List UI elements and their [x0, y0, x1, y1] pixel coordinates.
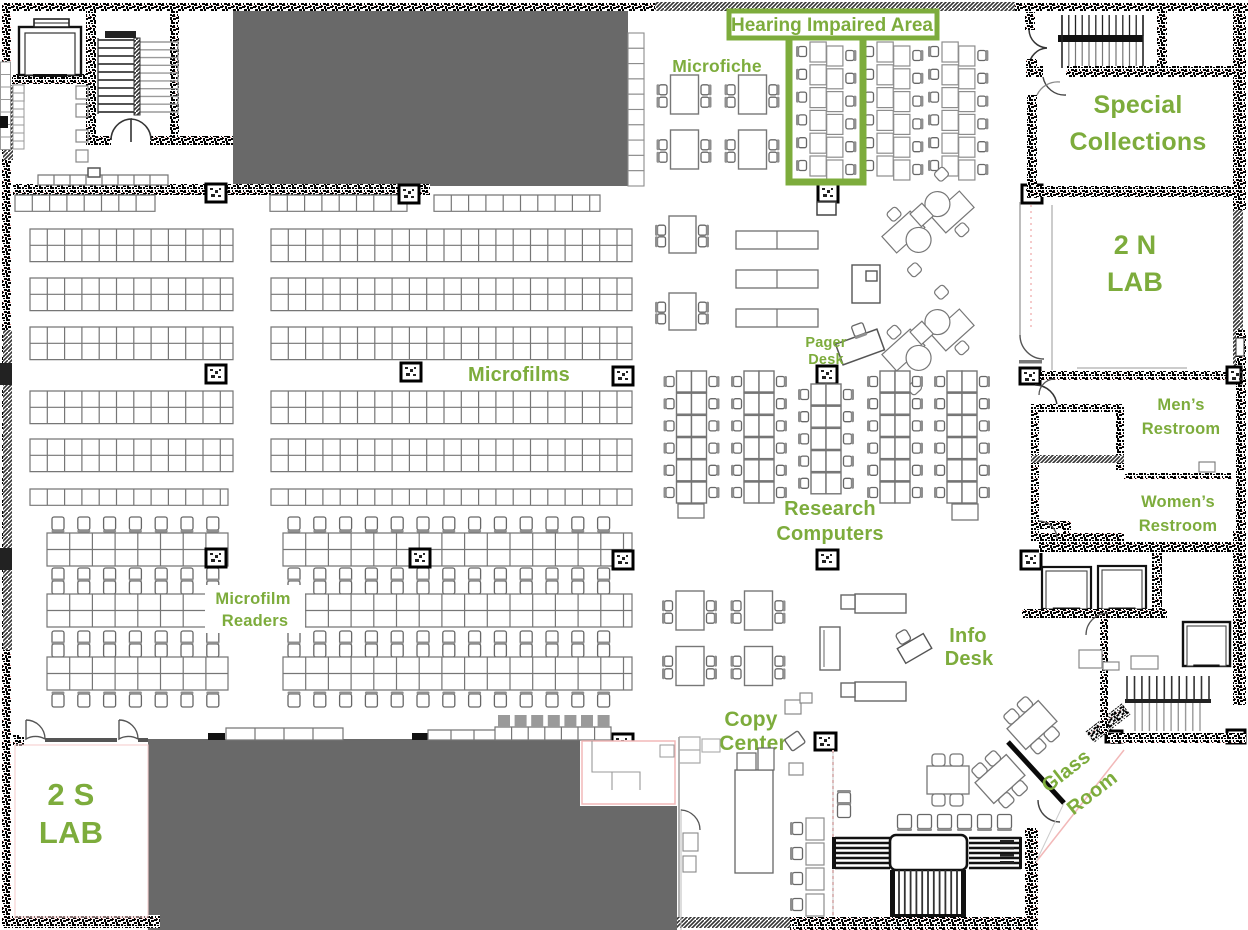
svg-text:Microfilms: Microfilms: [468, 364, 570, 386]
svg-text:LAB: LAB: [1107, 267, 1163, 297]
svg-text:Collections: Collections: [1070, 128, 1207, 156]
svg-text:Restroom: Restroom: [1139, 517, 1218, 535]
svg-text:Readers: Readers: [222, 612, 289, 630]
svg-text:Center: Center: [719, 732, 787, 755]
svg-text:Special: Special: [1094, 91, 1183, 119]
svg-text:Women’s: Women’s: [1141, 493, 1215, 511]
svg-text:Microfiche: Microfiche: [672, 56, 762, 76]
svg-text:Copy: Copy: [724, 708, 777, 731]
svg-text:LAB: LAB: [39, 815, 103, 850]
svg-text:Microfilm: Microfilm: [215, 590, 290, 608]
svg-text:Computers: Computers: [776, 523, 883, 545]
svg-text:2 N: 2 N: [1114, 230, 1157, 260]
svg-text:Restroom: Restroom: [1142, 420, 1221, 438]
svg-text:Hearing Impaired Area: Hearing Impaired Area: [731, 15, 933, 36]
svg-text:Desk: Desk: [945, 648, 994, 670]
svg-text:Info: Info: [949, 625, 986, 647]
svg-text:Pager: Pager: [805, 335, 846, 351]
svg-text:Desk: Desk: [808, 352, 844, 368]
svg-text:Men’s: Men’s: [1157, 396, 1204, 414]
svg-text:2 S: 2 S: [47, 777, 94, 812]
svg-text:Research: Research: [784, 498, 876, 520]
